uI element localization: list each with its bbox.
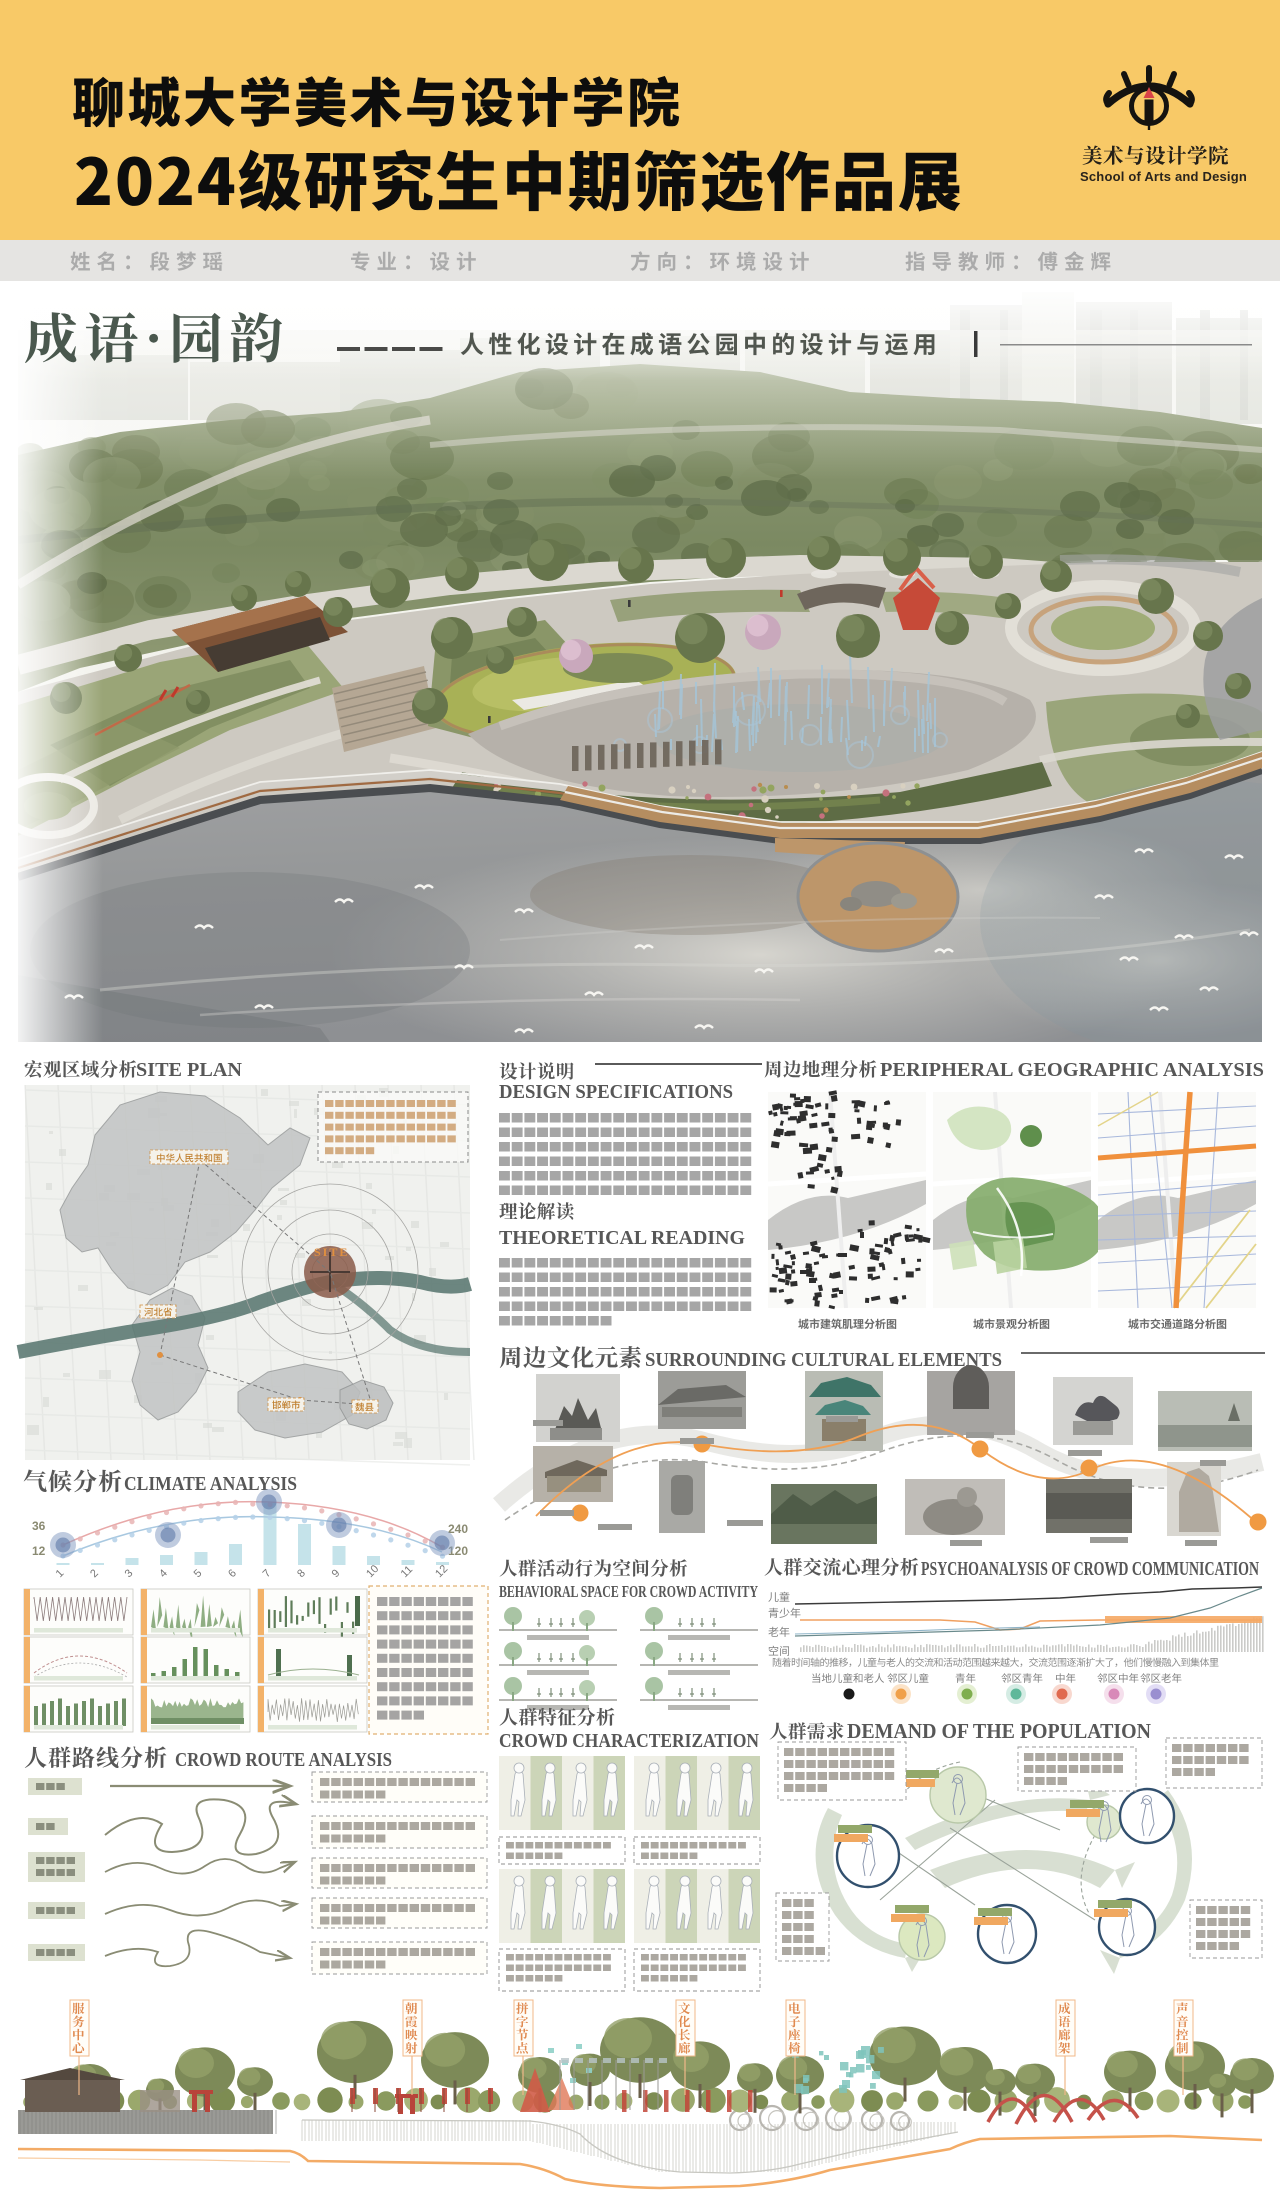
svg-text:5: 5 (192, 1567, 205, 1580)
svg-text:CROWD CHARACTERIZATION: CROWD CHARACTERIZATION (499, 1730, 759, 1752)
svg-text:DESIGN SPECIFICATIONS: DESIGN SPECIFICATIONS (499, 1081, 733, 1103)
svg-text:36: 36 (32, 1519, 46, 1533)
svg-text:6: 6 (226, 1567, 239, 1580)
svg-text:SITE: SITE (314, 1245, 349, 1259)
svg-text:10: 10 (364, 1563, 381, 1580)
svg-text:CROWD ROUTE ANALYSIS: CROWD ROUTE ANALYSIS (175, 1749, 392, 1771)
svg-text:THEORETICAL READING: THEORETICAL READING (499, 1227, 745, 1249)
svg-text:PSYCHOANALYSIS OF CROWD COMMUN: PSYCHOANALYSIS OF CROWD COMMUNICATION (921, 1558, 1259, 1580)
svg-text:SITE PLAN: SITE PLAN (136, 1059, 243, 1081)
svg-text:School of Arts and Design: School of Arts and Design (1080, 169, 1247, 184)
svg-text:DEMAND OF THE POPULATION: DEMAND OF THE POPULATION (847, 1719, 1151, 1743)
svg-text:3: 3 (123, 1567, 136, 1580)
svg-text:4: 4 (157, 1567, 170, 1580)
svg-text:BEHAVIORAL SPACE FOR CROWD ACT: BEHAVIORAL SPACE FOR CROWD ACTIVITY (499, 1582, 758, 1601)
svg-text:7: 7 (261, 1567, 274, 1580)
svg-text:1: 1 (54, 1567, 67, 1580)
svg-text:12: 12 (32, 1544, 46, 1558)
svg-text:SURROUNDING CULTURAL ELEMENTS: SURROUNDING CULTURAL ELEMENTS (645, 1349, 1002, 1371)
svg-text:11: 11 (399, 1564, 416, 1581)
svg-text:2: 2 (88, 1567, 101, 1580)
svg-text:8: 8 (295, 1567, 308, 1580)
svg-text:9: 9 (330, 1567, 343, 1580)
svg-text:PERIPHERAL GEOGRAPHIC ANALYSIS: PERIPHERAL GEOGRAPHIC ANALYSIS (880, 1059, 1264, 1081)
svg-text:12: 12 (433, 1563, 450, 1580)
